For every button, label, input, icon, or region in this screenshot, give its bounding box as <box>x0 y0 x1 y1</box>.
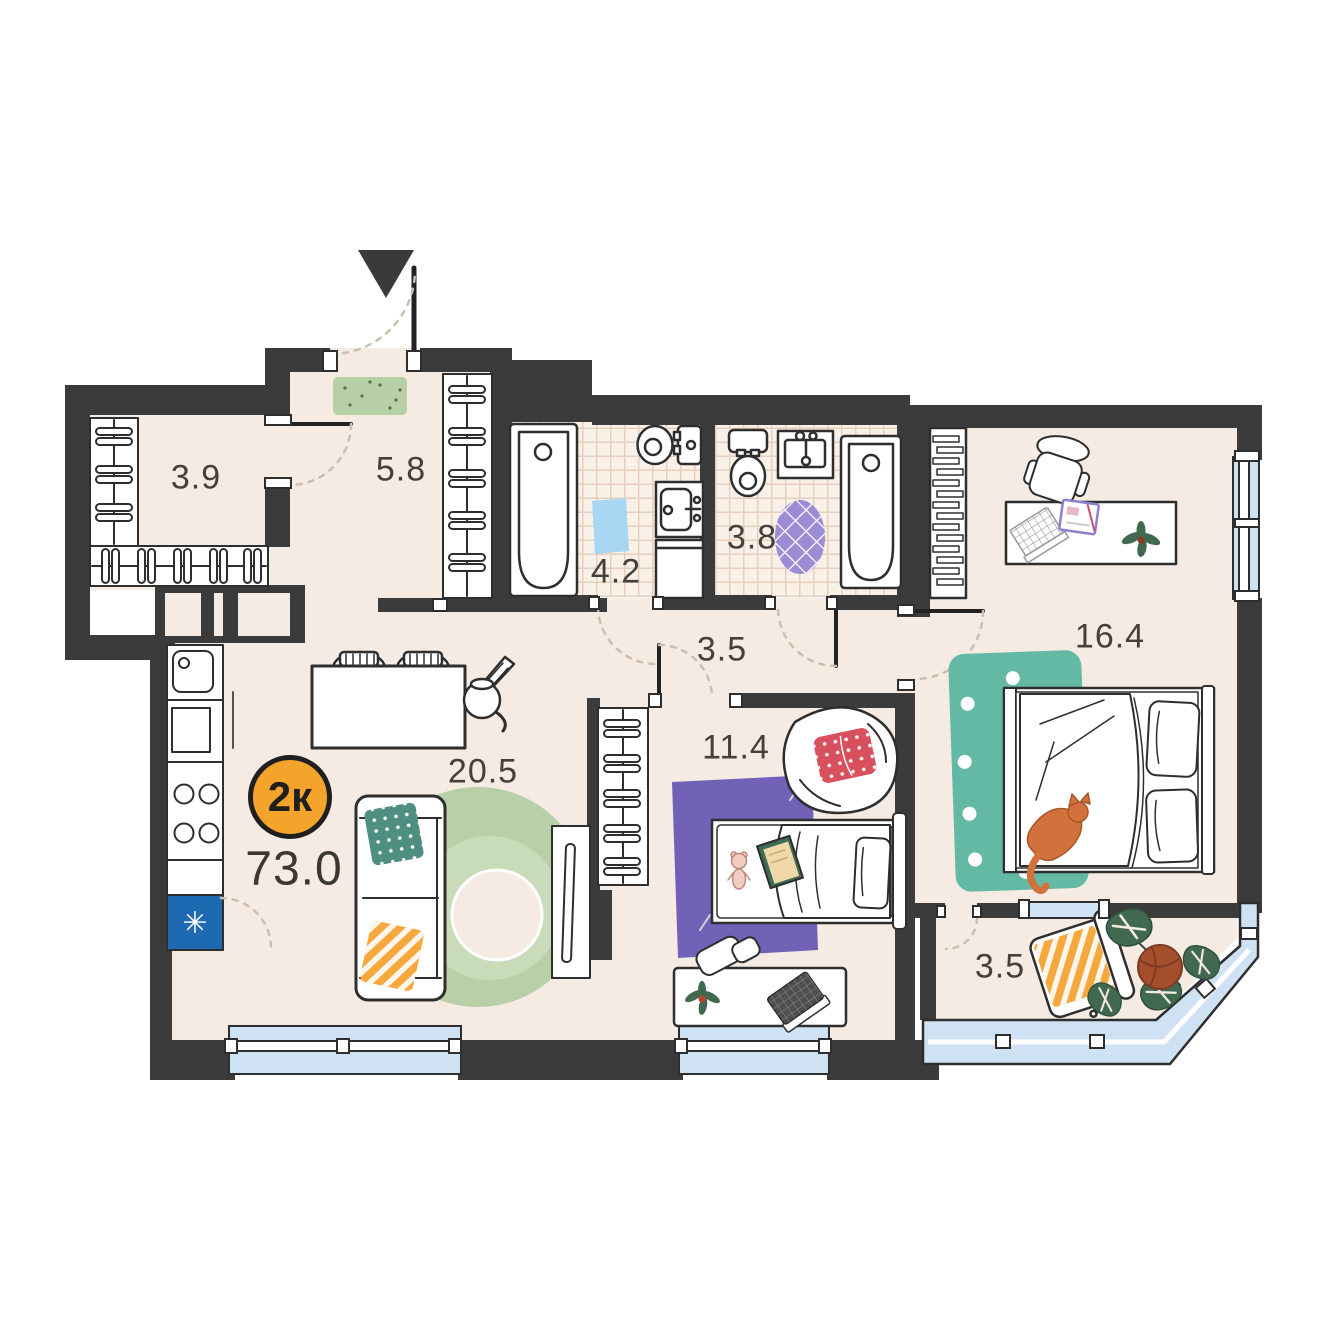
bathtub-2 <box>841 436 901 588</box>
toilet-2 <box>729 430 767 496</box>
door-jamb <box>588 596 600 610</box>
room-area-label-bathroom: 4.2 <box>591 553 641 592</box>
total-area-label: 73.0 <box>245 842 342 897</box>
bedroom-desk <box>1006 425 1176 564</box>
sofa-pillow-teal <box>364 802 425 866</box>
entrance-arrow-icon <box>358 250 414 298</box>
wardrobe-rail-bottom <box>90 546 268 586</box>
washbasin-2 <box>778 431 833 478</box>
door-jamb <box>264 477 292 489</box>
door-jamb <box>648 693 662 708</box>
hallway-closet <box>443 374 492 598</box>
door-jamb <box>729 693 743 708</box>
oven <box>172 708 210 752</box>
wardrobe-door <box>290 424 351 485</box>
fridge-snowflake-icon: ✳ <box>182 907 207 940</box>
window-frame-cap <box>818 1038 832 1054</box>
watering-can <box>464 657 514 731</box>
window-frame-cap <box>224 1038 238 1054</box>
dining-table <box>312 652 514 748</box>
bath-mat <box>592 498 629 554</box>
office-chair <box>1020 425 1100 508</box>
wall-end-cap <box>432 598 448 612</box>
bathroom-door-arc <box>598 606 656 664</box>
doormat <box>333 377 407 415</box>
door-jamb <box>972 905 982 918</box>
window-frame-cap <box>1098 899 1110 919</box>
door-jamb <box>897 679 915 691</box>
room-area-label-bedroom: 16.4 <box>1075 618 1145 657</box>
floor-plan: ✳ <box>0 0 1320 1320</box>
kitchen-sink <box>173 651 213 692</box>
balcony-door-arc <box>946 918 977 949</box>
door-jamb <box>322 350 338 372</box>
toilet <box>638 426 702 464</box>
bedroom-wardrobe <box>930 428 966 598</box>
toilet-door <box>778 608 836 666</box>
door-jamb <box>764 596 776 610</box>
room-area-label-kids: 11.4 <box>702 729 770 768</box>
room-area-label-balcony: 3.5 <box>975 948 1025 987</box>
fridge: ✳ <box>167 895 271 950</box>
double-bed <box>1004 686 1214 891</box>
kids-bed <box>712 813 906 929</box>
washing-machine <box>656 540 703 598</box>
wardrobe-rail-left <box>90 418 138 546</box>
apartment-type-badge: 2к <box>248 755 332 839</box>
notebook <box>1059 500 1099 535</box>
basketball <box>1138 945 1182 989</box>
tv-stand <box>552 826 590 978</box>
kids-wardrobe <box>598 708 648 885</box>
bean-bag <box>784 707 898 813</box>
entrance-door <box>331 268 415 354</box>
window-frame-cap <box>1234 450 1260 462</box>
apartment-type-label: 2к <box>268 773 312 821</box>
room-area-label-hallway: 5.8 <box>376 451 426 490</box>
door-jamb <box>826 596 838 610</box>
window-frame-cap <box>1018 899 1030 919</box>
room-area-label-living: 20.5 <box>448 753 518 792</box>
door-jamb <box>652 596 664 610</box>
window-frame-cap <box>448 1038 462 1054</box>
window-frame-cap <box>336 1038 350 1054</box>
toilet-rug <box>775 500 825 574</box>
door-jamb <box>264 414 292 426</box>
room-area-label-wardrobe: 3.9 <box>171 459 221 498</box>
window-frame-cap <box>674 1038 688 1054</box>
door-jamb <box>406 350 422 372</box>
furniture-layer: ✳ <box>0 0 1320 1320</box>
window-frame-cap <box>1234 518 1260 528</box>
room-area-label-toilet: 3.8 <box>727 519 777 558</box>
window-frame-cap <box>1234 590 1260 602</box>
door-jamb <box>897 604 915 616</box>
washbasin <box>656 482 703 537</box>
room-area-label-corridor: 3.5 <box>697 631 747 670</box>
bathtub <box>510 424 577 596</box>
door-jamb <box>936 905 946 918</box>
